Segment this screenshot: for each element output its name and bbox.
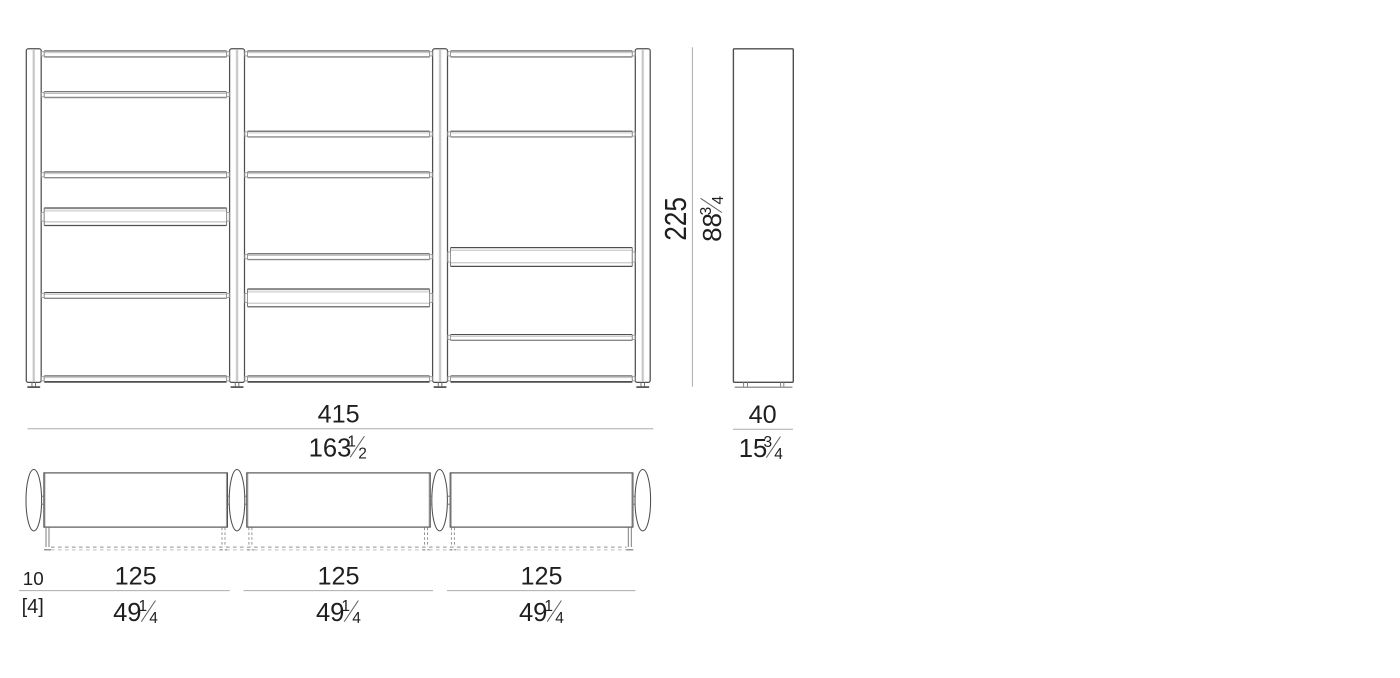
svg-text:4: 4 [149, 610, 158, 627]
svg-text:163: 163 [309, 435, 352, 463]
svg-text:125: 125 [520, 562, 562, 590]
svg-text:10: 10 [23, 568, 44, 589]
svg-text:88: 88 [697, 213, 727, 242]
svg-text:40: 40 [749, 401, 777, 429]
svg-text:3: 3 [698, 207, 715, 216]
svg-text:1: 1 [341, 598, 350, 615]
svg-text:125: 125 [317, 562, 359, 590]
svg-text:225: 225 [659, 197, 694, 241]
svg-text:3: 3 [763, 434, 772, 451]
svg-text:4: 4 [710, 196, 727, 205]
svg-text:4: 4 [774, 446, 783, 463]
svg-text:1: 1 [347, 434, 356, 451]
svg-text:49: 49 [113, 599, 141, 627]
svg-text:1: 1 [544, 598, 553, 615]
svg-text:125: 125 [115, 562, 157, 590]
svg-text:1: 1 [138, 598, 147, 615]
svg-text:2: 2 [358, 446, 367, 463]
svg-text:4: 4 [352, 610, 361, 627]
svg-text:4: 4 [555, 610, 564, 627]
svg-text:49: 49 [316, 599, 344, 627]
svg-text:[4]: [4] [22, 596, 44, 618]
svg-text:49: 49 [519, 599, 547, 627]
svg-text:415: 415 [318, 400, 360, 428]
